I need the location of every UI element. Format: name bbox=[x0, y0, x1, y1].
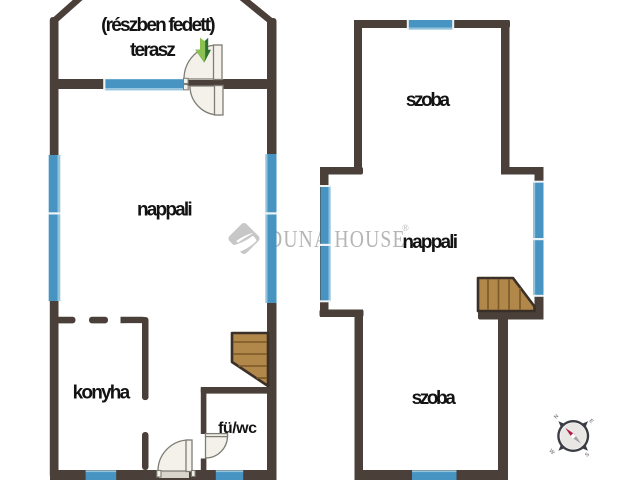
svg-text:W: W bbox=[547, 448, 555, 456]
svg-text:terasz: terasz bbox=[130, 40, 175, 61]
svg-text:konyha: konyha bbox=[73, 383, 131, 404]
svg-text:fü/wc: fü/wc bbox=[218, 420, 257, 437]
svg-text:S: S bbox=[584, 451, 591, 458]
svg-text:DUNA HOUSE: DUNA HOUSE bbox=[268, 225, 406, 253]
svg-text:nappali: nappali bbox=[402, 232, 456, 253]
svg-text:szoba: szoba bbox=[412, 388, 457, 409]
svg-text:E: E bbox=[587, 418, 594, 425]
svg-text:nappali: nappali bbox=[137, 200, 191, 221]
svg-text:N: N bbox=[553, 413, 560, 420]
svg-text:(részben fedett): (részben fedett) bbox=[101, 15, 215, 36]
svg-text:szoba: szoba bbox=[406, 90, 451, 111]
